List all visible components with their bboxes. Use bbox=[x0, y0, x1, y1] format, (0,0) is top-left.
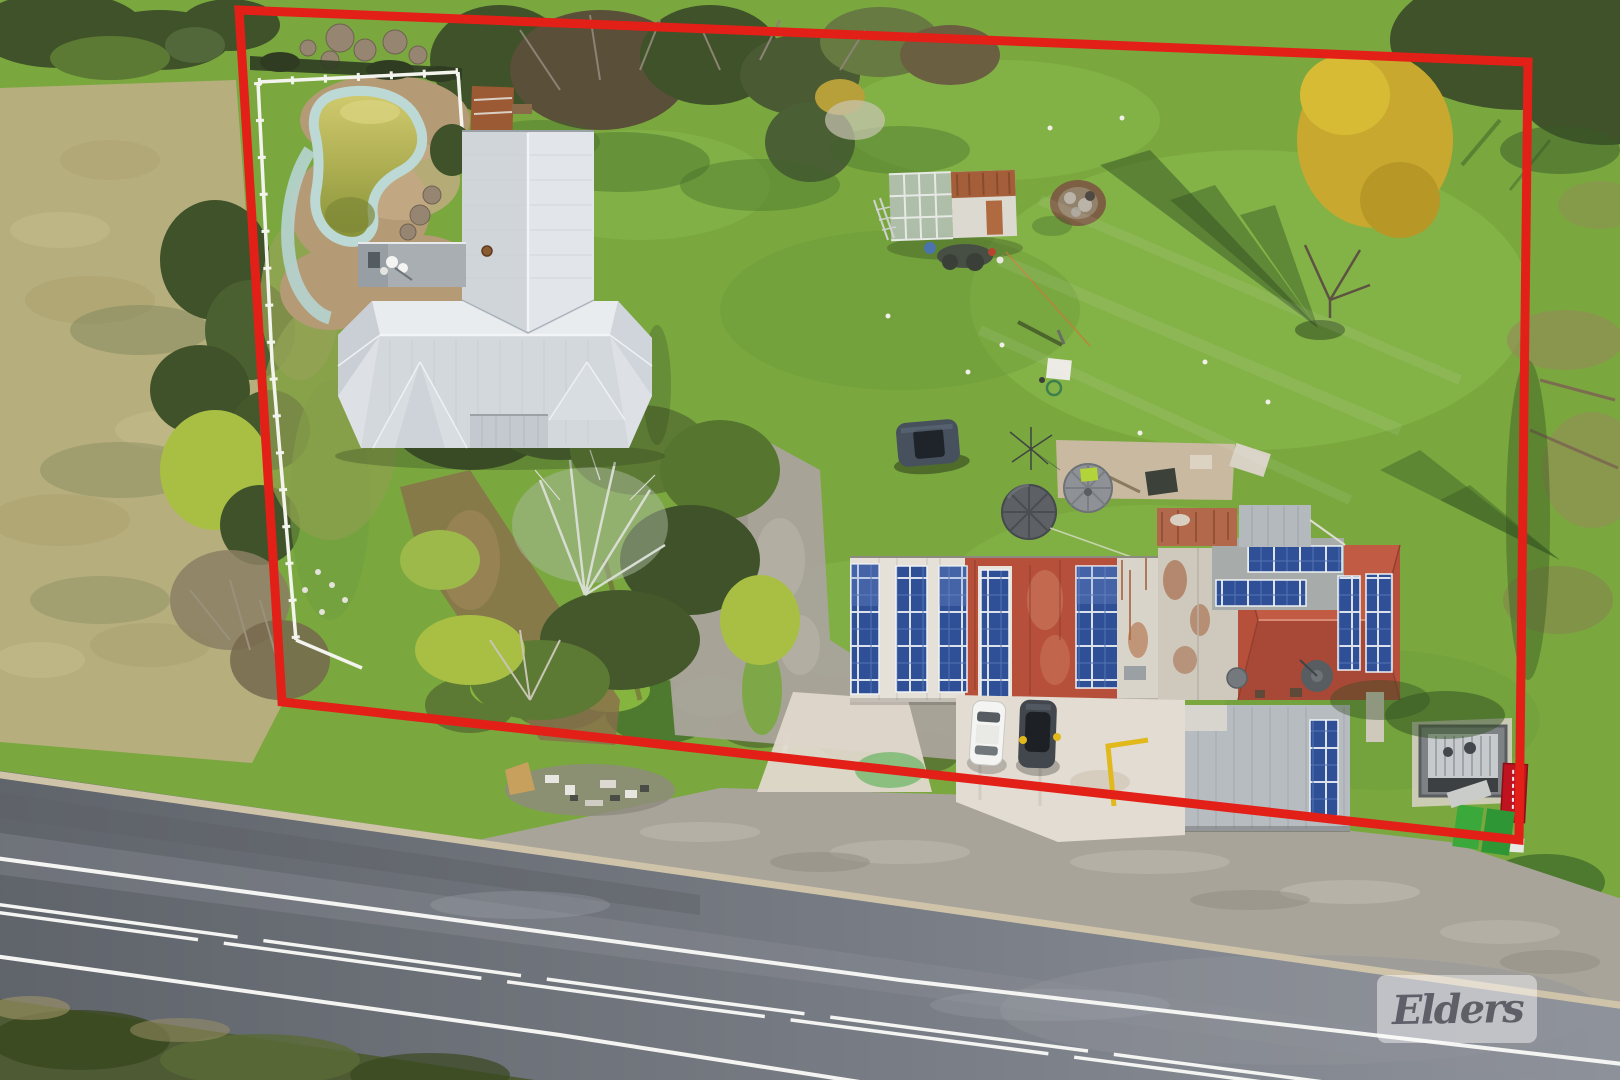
west-building bbox=[850, 556, 1160, 705]
solar-strip-east-1 bbox=[1338, 576, 1360, 670]
solar-row-north-1 bbox=[1248, 546, 1342, 572]
aerial-property-photo: Elders bbox=[0, 0, 1620, 1080]
water-tank-large bbox=[1002, 485, 1056, 539]
roof-deck bbox=[358, 243, 466, 287]
solar-row-north-2 bbox=[1216, 580, 1306, 606]
dead-tree-canopy bbox=[512, 467, 668, 583]
satellite-dish-small bbox=[1227, 668, 1247, 688]
elders-logo-watermark: Elders bbox=[1377, 975, 1537, 1043]
aerial-photo-canvas bbox=[0, 0, 1620, 1080]
solar-array-2 bbox=[896, 566, 927, 692]
elders-logo-text: Elders bbox=[1391, 984, 1523, 1033]
solar-column-south bbox=[1310, 720, 1338, 816]
chimney-flue bbox=[482, 246, 492, 256]
north-grey-shed bbox=[1239, 505, 1311, 547]
solar-strip-east-2 bbox=[1366, 574, 1392, 672]
water-tank-small bbox=[1064, 464, 1112, 512]
rusty-shed-box bbox=[470, 86, 514, 135]
tarp-pile bbox=[825, 100, 885, 140]
solar-array-4 bbox=[981, 570, 1009, 697]
tarp bbox=[1145, 468, 1178, 496]
green-lid-item bbox=[1080, 467, 1098, 482]
